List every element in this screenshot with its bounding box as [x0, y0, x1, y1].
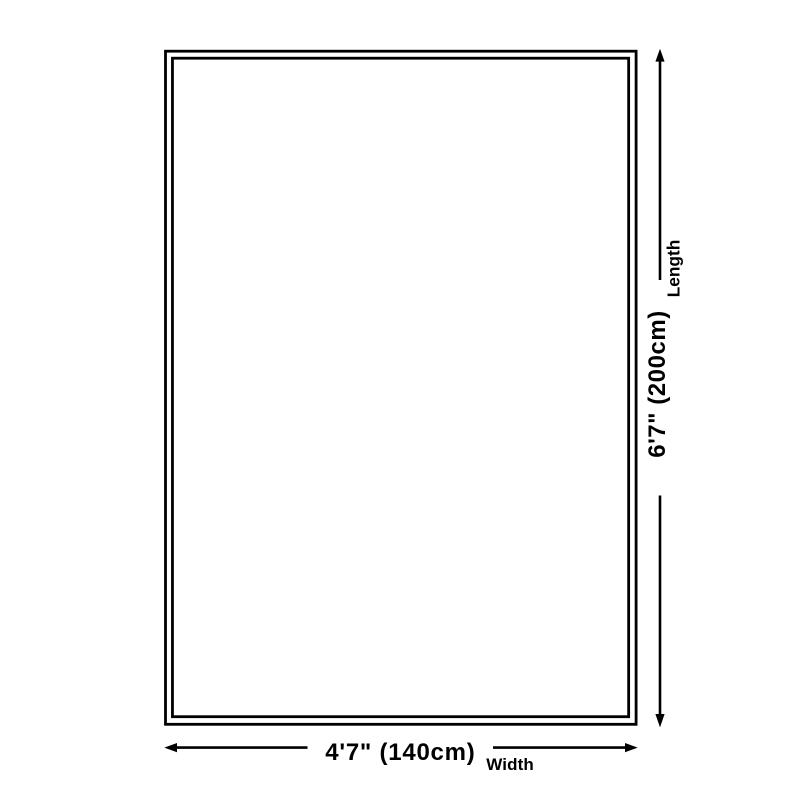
svg-text:4'7" (140cm): 4'7" (140cm) [325, 739, 475, 766]
svg-text:Width: Width [486, 755, 534, 774]
svg-text:6'7" (200cm): 6'7" (200cm) [644, 311, 671, 458]
svg-text:Length: Length [664, 240, 684, 298]
